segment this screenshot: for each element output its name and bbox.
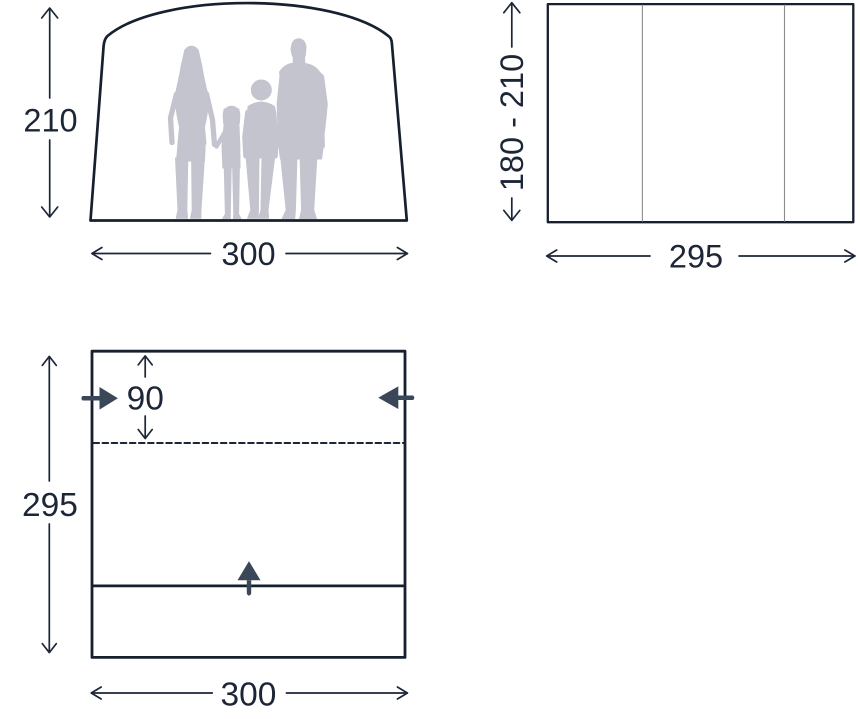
- svg-text:295: 295: [669, 239, 723, 275]
- svg-text:300: 300: [221, 677, 277, 714]
- svg-text:210: 210: [23, 103, 77, 139]
- svg-text:90: 90: [127, 381, 164, 418]
- svg-text:180 - 210: 180 - 210: [494, 54, 530, 191]
- svg-text:295: 295: [22, 487, 78, 524]
- svg-text:300: 300: [221, 236, 275, 272]
